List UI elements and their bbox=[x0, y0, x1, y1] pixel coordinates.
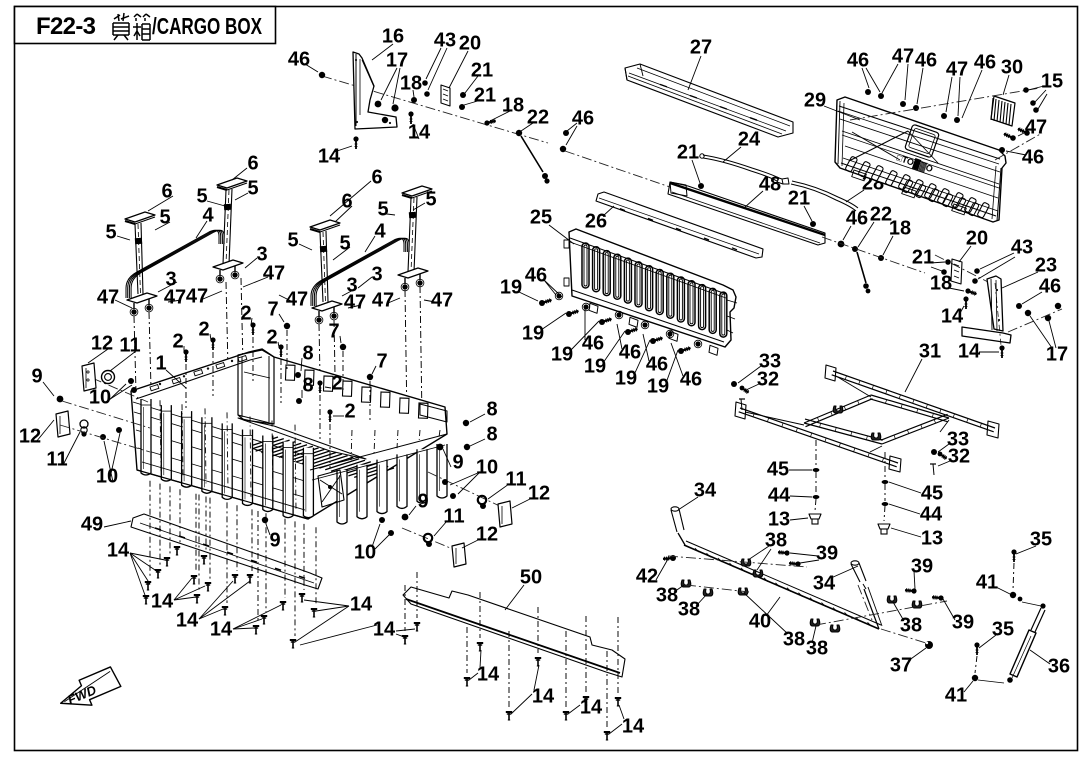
svg-text:2: 2 bbox=[172, 330, 183, 352]
svg-text:47: 47 bbox=[892, 45, 914, 67]
svg-text:19: 19 bbox=[615, 367, 637, 389]
svg-text:47: 47 bbox=[946, 58, 968, 80]
svg-text:34: 34 bbox=[694, 479, 717, 501]
svg-text:50: 50 bbox=[520, 566, 542, 588]
svg-text:47: 47 bbox=[1025, 116, 1047, 138]
svg-text:6: 6 bbox=[161, 180, 172, 202]
svg-text:3: 3 bbox=[371, 263, 382, 285]
svg-text:20: 20 bbox=[966, 227, 988, 249]
svg-text:12: 12 bbox=[91, 332, 113, 354]
svg-text:46: 46 bbox=[1022, 146, 1044, 168]
svg-text:5: 5 bbox=[105, 221, 116, 243]
svg-text:46: 46 bbox=[646, 353, 668, 375]
svg-text:49: 49 bbox=[81, 513, 103, 535]
svg-text:27: 27 bbox=[690, 36, 712, 58]
svg-text:29: 29 bbox=[804, 89, 826, 111]
svg-text:16: 16 bbox=[382, 25, 404, 47]
svg-text:11: 11 bbox=[46, 448, 67, 470]
svg-text:23: 23 bbox=[1035, 254, 1057, 276]
svg-text:13: 13 bbox=[921, 527, 943, 549]
svg-text:25: 25 bbox=[530, 206, 552, 228]
svg-text:6: 6 bbox=[371, 166, 382, 188]
svg-text:47: 47 bbox=[372, 289, 394, 311]
svg-text:32: 32 bbox=[757, 368, 779, 390]
svg-text:42: 42 bbox=[636, 565, 658, 587]
svg-text:14: 14 bbox=[958, 340, 981, 362]
svg-text:47: 47 bbox=[263, 262, 285, 284]
svg-text:18: 18 bbox=[889, 217, 911, 239]
svg-text:45: 45 bbox=[767, 458, 789, 480]
svg-text:5: 5 bbox=[377, 198, 388, 220]
svg-text:19: 19 bbox=[647, 375, 669, 397]
svg-text:14: 14 bbox=[350, 593, 373, 615]
svg-text:38: 38 bbox=[783, 628, 805, 650]
svg-text:38: 38 bbox=[806, 637, 828, 659]
svg-text:46: 46 bbox=[1039, 275, 1061, 297]
svg-text:11: 11 bbox=[119, 334, 140, 356]
svg-text:14: 14 bbox=[580, 696, 603, 718]
svg-text:26: 26 bbox=[585, 210, 607, 232]
svg-text:38: 38 bbox=[900, 614, 922, 636]
svg-text:14: 14 bbox=[941, 305, 964, 327]
svg-text:14: 14 bbox=[532, 685, 555, 707]
svg-text:19: 19 bbox=[522, 322, 544, 344]
svg-text:47: 47 bbox=[97, 286, 119, 308]
svg-text:F22-3: F22-3 bbox=[36, 13, 96, 40]
svg-text:35: 35 bbox=[992, 618, 1014, 640]
svg-text:10: 10 bbox=[89, 386, 111, 408]
svg-text:9: 9 bbox=[269, 529, 280, 551]
svg-text:7: 7 bbox=[376, 350, 387, 372]
svg-text:2: 2 bbox=[331, 372, 342, 394]
svg-text:19: 19 bbox=[584, 355, 606, 377]
svg-text:/CARGO BOX: /CARGO BOX bbox=[152, 13, 262, 39]
svg-text:43: 43 bbox=[1011, 236, 1033, 258]
svg-text:46: 46 bbox=[915, 49, 937, 71]
svg-text:15: 15 bbox=[1041, 70, 1063, 92]
svg-text:38: 38 bbox=[678, 598, 700, 620]
svg-text:9: 9 bbox=[417, 490, 428, 512]
svg-text:39: 39 bbox=[952, 611, 974, 633]
svg-text:39: 39 bbox=[816, 542, 838, 564]
svg-text:47: 47 bbox=[164, 286, 186, 308]
svg-text:12: 12 bbox=[528, 482, 550, 504]
svg-text:14: 14 bbox=[408, 121, 431, 143]
svg-text:21: 21 bbox=[788, 187, 810, 209]
svg-text:10: 10 bbox=[96, 465, 118, 487]
svg-text:11: 11 bbox=[443, 505, 464, 527]
svg-text:21: 21 bbox=[912, 246, 934, 268]
svg-text:46: 46 bbox=[619, 341, 641, 363]
svg-text:14: 14 bbox=[176, 609, 199, 631]
svg-text:2: 2 bbox=[198, 318, 209, 340]
svg-text:47: 47 bbox=[431, 289, 453, 311]
svg-text:1: 1 bbox=[155, 352, 166, 374]
svg-text:18: 18 bbox=[400, 72, 422, 94]
svg-text:31: 31 bbox=[919, 340, 941, 362]
svg-text:37: 37 bbox=[890, 654, 912, 676]
svg-text:41: 41 bbox=[945, 684, 967, 706]
svg-text:19: 19 bbox=[551, 343, 573, 365]
svg-text:12: 12 bbox=[19, 425, 41, 447]
svg-text:12: 12 bbox=[476, 523, 498, 545]
svg-text:21: 21 bbox=[677, 141, 699, 163]
svg-text:46: 46 bbox=[572, 107, 594, 129]
svg-text:8: 8 bbox=[486, 398, 497, 420]
svg-text:14: 14 bbox=[151, 590, 174, 612]
svg-text:8: 8 bbox=[486, 423, 497, 445]
svg-text:46: 46 bbox=[680, 368, 702, 390]
svg-text:2: 2 bbox=[240, 302, 251, 324]
svg-text:19: 19 bbox=[500, 276, 522, 298]
svg-text:41: 41 bbox=[976, 571, 998, 593]
svg-text:47: 47 bbox=[186, 285, 208, 307]
svg-text:14: 14 bbox=[622, 715, 645, 737]
svg-text:21: 21 bbox=[471, 59, 493, 81]
svg-text:34: 34 bbox=[813, 572, 836, 594]
svg-text:47: 47 bbox=[286, 288, 308, 310]
svg-text:7: 7 bbox=[267, 298, 278, 320]
svg-text:21: 21 bbox=[474, 84, 496, 106]
svg-text:4: 4 bbox=[374, 220, 386, 242]
svg-text:18: 18 bbox=[930, 272, 952, 294]
svg-text:7: 7 bbox=[328, 320, 339, 342]
svg-text:45: 45 bbox=[921, 482, 943, 504]
svg-text:5: 5 bbox=[425, 188, 436, 210]
svg-text:14: 14 bbox=[107, 539, 130, 561]
svg-text:38: 38 bbox=[765, 529, 787, 551]
svg-text:9: 9 bbox=[452, 451, 463, 473]
svg-text:24: 24 bbox=[738, 128, 761, 150]
svg-text:17: 17 bbox=[386, 49, 408, 71]
svg-text:14: 14 bbox=[318, 145, 341, 167]
svg-text:14: 14 bbox=[210, 618, 233, 640]
svg-text:38: 38 bbox=[656, 584, 678, 606]
svg-text:22: 22 bbox=[527, 106, 549, 128]
svg-text:46: 46 bbox=[974, 51, 996, 73]
svg-text:46: 46 bbox=[846, 207, 868, 229]
svg-text:32: 32 bbox=[948, 445, 970, 467]
svg-text:20: 20 bbox=[459, 32, 481, 54]
svg-text:44: 44 bbox=[920, 503, 943, 525]
svg-text:44: 44 bbox=[768, 484, 791, 506]
svg-text:6: 6 bbox=[247, 152, 258, 174]
svg-text:17: 17 bbox=[1046, 343, 1068, 365]
svg-text:13: 13 bbox=[768, 508, 790, 530]
svg-text:9: 9 bbox=[31, 365, 42, 387]
svg-text:46: 46 bbox=[847, 49, 869, 71]
svg-text:2: 2 bbox=[266, 326, 277, 348]
svg-text:11: 11 bbox=[505, 468, 526, 490]
svg-text:18: 18 bbox=[502, 94, 524, 116]
svg-text:8: 8 bbox=[302, 342, 313, 364]
svg-text:47: 47 bbox=[344, 291, 366, 313]
svg-text:46: 46 bbox=[288, 48, 310, 70]
svg-text:5: 5 bbox=[287, 229, 298, 251]
svg-text:5: 5 bbox=[247, 177, 258, 199]
svg-text:14: 14 bbox=[373, 618, 396, 640]
svg-text:10: 10 bbox=[476, 456, 498, 478]
svg-text:4: 4 bbox=[202, 204, 214, 226]
svg-text:2: 2 bbox=[344, 400, 355, 422]
svg-text:30: 30 bbox=[1001, 56, 1023, 78]
svg-text:43: 43 bbox=[434, 29, 456, 51]
svg-text:36: 36 bbox=[1048, 655, 1070, 677]
svg-text:8: 8 bbox=[302, 374, 313, 396]
svg-text:46: 46 bbox=[525, 264, 547, 286]
